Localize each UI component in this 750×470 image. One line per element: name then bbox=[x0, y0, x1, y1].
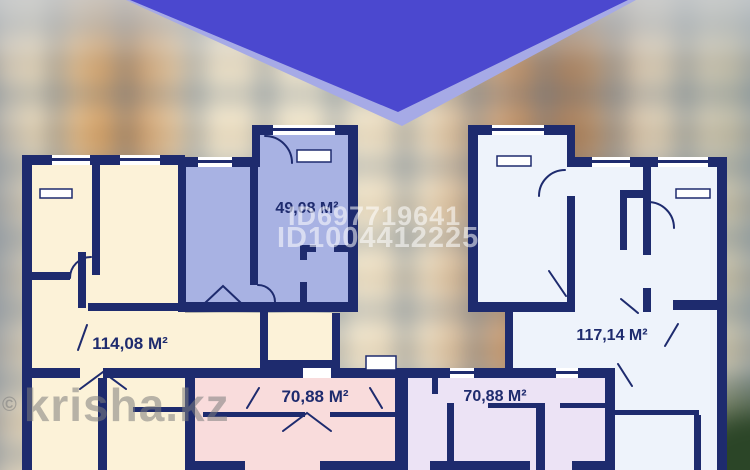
listing-photo: 114,08 M² 49,08 M² 117,14 M² 70,88 M² 70… bbox=[0, 0, 750, 470]
area-label-left: 114,08 M² bbox=[92, 334, 168, 353]
brand-watermark: © krisha.kz bbox=[2, 382, 230, 428]
area-label-right: 117,14 M² bbox=[576, 327, 647, 344]
brand-watermark-text: krisha.kz bbox=[24, 382, 230, 428]
area-label-bottom-right: 70,88 M² bbox=[463, 388, 526, 405]
listing-id-watermark-2: ID1004412225 bbox=[277, 224, 479, 253]
copyright-icon: © bbox=[2, 395, 17, 415]
apartment-bottom-right-area bbox=[408, 370, 613, 470]
area-label-bottom-left: 70,88 M² bbox=[281, 387, 348, 406]
